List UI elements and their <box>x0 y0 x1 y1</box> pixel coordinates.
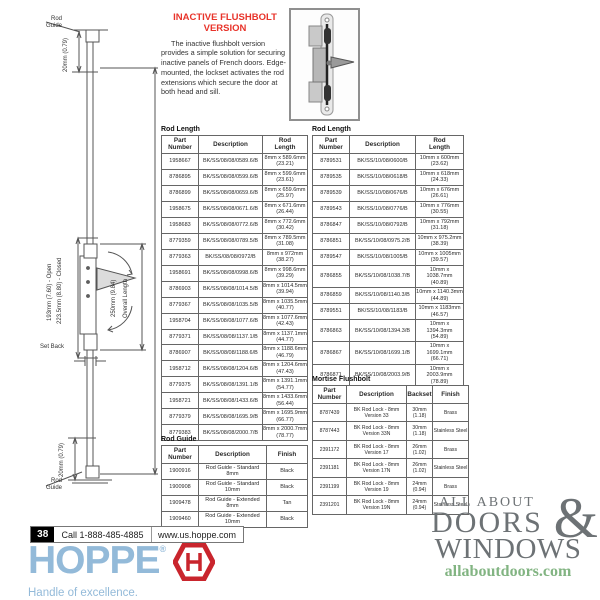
table-cell: 8786867 <box>313 342 350 364</box>
set-back-label: Set Back <box>40 344 64 351</box>
table-row: 8786855BK/SS/10/08/1038.7/B10mm x 1038.7… <box>313 265 464 287</box>
table-cell: 26mm (1.02) <box>407 459 433 478</box>
table-row: 8787443BK Rod Lock - 8mm Version 33N30mm… <box>313 422 469 441</box>
table-cell: BK/SS/08/08/1204.6/B <box>199 361 263 377</box>
column-header: Description <box>350 136 416 154</box>
table-cell: BK Rod Lock - 8mm Version 33N <box>347 422 407 441</box>
table-row: 8786851BK/SS/10/08/0975.2/B10mm x 975.2m… <box>313 233 464 249</box>
rod-guide-top-label: Rod Guide <box>36 16 62 30</box>
table-cell: 10mm x 600mm (23.62) <box>416 153 464 169</box>
table-cell: 8779363 <box>162 249 199 265</box>
table-cell: 10mm x 1183mm (46.57) <box>416 304 464 320</box>
table-cell: 8mm x 1077.6mm (42.43) <box>263 313 308 329</box>
table-cell: BK/SS/08/08/1391.1/B <box>199 377 263 393</box>
table-cell: BK/SS/10/08/1038.7/B <box>350 265 416 287</box>
rod-length-10mm-section: Rod Length Part NumberDescriptionRod Len… <box>312 126 464 387</box>
header-row: Part NumberDescriptionRod Length <box>162 136 308 154</box>
table-cell: BK/SS/08/08/0972/B <box>199 249 263 265</box>
table-row: 1909478Rod Guide - Extended 8mmTan <box>162 495 308 511</box>
table-cell: BK/SS/08/08/0671.6/B <box>199 201 263 217</box>
flushbolt-photo-icon <box>291 10 358 119</box>
column-header: Rod Length <box>416 136 464 154</box>
table-cell: BK/SS/08/08/0998.6/B <box>199 265 263 281</box>
column-header: Backset <box>407 386 433 404</box>
watermark-url[interactable]: allaboutdoors.com <box>418 564 598 581</box>
table-cell: 10mm x 676mm (26.61) <box>416 185 464 201</box>
table-cell: 10mm x 1038.7mm (40.89) <box>416 265 464 287</box>
table-cell: 8779367 <box>162 297 199 313</box>
table-cell: Stainless Steel <box>433 459 469 478</box>
table-row: 8786847BK/SS/10/08/0792/B10mm x 792mm (3… <box>313 217 464 233</box>
hoppe-logo: HOPPE ® Handle of excellence. <box>28 542 215 599</box>
column-header: Finish <box>267 446 308 464</box>
table-cell: 8mm x 1695.9mm (66.77) <box>263 409 308 425</box>
table-cell: 8mm x 972mm (38.27) <box>263 249 308 265</box>
table-cell: BK Rod Lock - 8mm Version 19N <box>347 496 407 515</box>
table-row: 1958691BK/SS/08/08/0998.6/B8mm x 998.6mm… <box>162 265 308 281</box>
hoppe-hexagon-h-icon <box>173 543 215 586</box>
table-title: Rod Length <box>312 126 464 133</box>
intro-paragraph: The inactive flushbolt version provides … <box>161 39 289 97</box>
table-row: 1909460Rod Guide - Extended 10mmBlack <box>162 511 308 527</box>
table-cell: 8786863 <box>313 320 350 342</box>
table-cell: BK/SS/10/08/1699.1/B <box>350 342 416 364</box>
table-cell: 8mm x 659.6mm (25.97) <box>263 185 308 201</box>
table-cell: 2391172 <box>313 440 347 459</box>
table-row: 1900908Rod Guide - Standard 10mmBlack <box>162 479 308 495</box>
column-header: Description <box>347 386 407 404</box>
table-title: Rod Length <box>161 126 308 133</box>
table-row: 1958721BK/SS/08/08/1433.6/B8mm x 1433.6m… <box>162 393 308 409</box>
table-cell: 8789543 <box>313 201 350 217</box>
table-cell: 1958675 <box>162 201 199 217</box>
table-cell: Black <box>267 511 308 527</box>
table-cell: BK/SS/08/08/0772.6/B <box>199 217 263 233</box>
flushbolt-product-photo <box>289 8 360 121</box>
dim-250mm-label: 250mm (9.84) <box>111 248 118 348</box>
table-cell: 8786847 <box>313 217 350 233</box>
table-cell: BK/SS/10/08/0776/B <box>350 201 416 217</box>
table-row: 8786895BK/SS/08/08/0599.6/B8mm x 599.6mm… <box>162 169 308 185</box>
rod-length-10mm-table: Part NumberDescriptionRod Length8789531B… <box>312 135 464 387</box>
table-cell: 8786895 <box>162 169 199 185</box>
rod-guide-section: Rod Guide Part NumberDescriptionFinish19… <box>161 436 308 528</box>
table-cell: 1900908 <box>162 479 199 495</box>
table-cell: 8786899 <box>162 185 199 201</box>
table-cell: 8786907 <box>162 345 199 361</box>
dim-20mm-top-label: 20mm (0.79) <box>63 32 70 78</box>
header-row: Part NumberDescriptionRod Length <box>313 136 464 154</box>
table-cell: Rod Guide - Standard 8mm <box>199 463 267 479</box>
table-cell: 1909460 <box>162 511 199 527</box>
table-cell: BK/SS/08/08/1188.6/B <box>199 345 263 361</box>
table-cell: BK Rod Lock - 8mm Version 17N <box>347 459 407 478</box>
table-cell: 8789551 <box>313 304 350 320</box>
table-cell: BK/SS/08/08/1433.6/B <box>199 393 263 409</box>
table-cell: BK/SS/10/08/0676/B <box>350 185 416 201</box>
table-row: 8786903BK/SS/08/08/1014.5/B8mm x 1014.5m… <box>162 281 308 297</box>
table-cell: 30mm (1.18) <box>407 422 433 441</box>
table-cell: BK/SS/08/08/1035.5/B <box>199 297 263 313</box>
rod-length-8mm-table: Part NumberDescriptionRod Length1958667B… <box>161 135 308 441</box>
table-row: 8789551BK/SS/10/08/1183/B10mm x 1183mm (… <box>313 304 464 320</box>
table-row: 1958675BK/SS/08/08/0671.6/B8mm x 671.6mm… <box>162 201 308 217</box>
table-cell: 8mm x 998.6mm (39.29) <box>263 265 308 281</box>
table-row: 8779367BK/SS/08/08/1035.5/B8mm x 1035.5m… <box>162 297 308 313</box>
table-cell: 1958691 <box>162 265 199 281</box>
table-row: 8779363BK/SS/08/08/0972/B8mm x 972mm (38… <box>162 249 308 265</box>
table-cell: 8789535 <box>313 169 350 185</box>
table-cell: Brass <box>433 477 469 496</box>
table-row: 8786899BK/SS/08/08/0659.6/B8mm x 659.6mm… <box>162 185 308 201</box>
table-cell: 8mm x 1035.5mm (40.77) <box>263 297 308 313</box>
table-row: 8786867BK/SS/10/08/1699.1/B10mm x 1699.1… <box>313 342 464 364</box>
table-cell: 10mm x 618mm (24.33) <box>416 169 464 185</box>
table-cell: 8mm x 599.6mm (23.61) <box>263 169 308 185</box>
table-cell: BK/SS/10/08/0975.2/B <box>350 233 416 249</box>
table-cell: 8779379 <box>162 409 199 425</box>
table-cell: BK/SS/08/08/1137.1/B <box>199 329 263 345</box>
table-cell: 10mm x 792mm (31.18) <box>416 217 464 233</box>
rod-length-8mm-section: Rod Length Part NumberDescriptionRod Len… <box>161 126 308 441</box>
table-cell: BK/SS/10/08/1140.3/B <box>350 288 416 304</box>
table-title: Rod Guide <box>161 436 308 443</box>
table-cell: 10mm x 975.2mm (38.39) <box>416 233 464 249</box>
table-row: 1900916Rod Guide - Standard 8mmBlack <box>162 463 308 479</box>
allaboutdoors-logo: & ALL ABOUT DOORS WINDOWS allaboutdoors.… <box>418 496 598 581</box>
table-cell: BK Rod Lock - 8mm Version 19 <box>347 477 407 496</box>
ampersand-glyph: & <box>554 490 598 547</box>
table-cell: 8786855 <box>313 265 350 287</box>
table-cell: 8mm x 1391.1mm (54.77) <box>263 377 308 393</box>
table-cell: 10mm x 1394.3mm (54.89) <box>416 320 464 342</box>
column-header: Part Number <box>313 136 350 154</box>
table-row: 8789535BK/SS/10/08/0618/B10mm x 618mm (2… <box>313 169 464 185</box>
table-cell: Rod Guide - Extended 8mm <box>199 495 267 511</box>
table-row: 8779375BK/SS/08/08/1391.1/B8mm x 1391.1m… <box>162 377 308 393</box>
table-cell: 2391181 <box>313 459 347 478</box>
column-header: Part Number <box>313 386 347 404</box>
table-cell: BK Rod Lock - 8mm Version 17 <box>347 440 407 459</box>
dim-closed-label: 223.5mm (8.80) - Closed <box>57 230 64 352</box>
table-cell: 8mm x 589.6mm (23.21) <box>263 153 308 169</box>
table-cell: Rod Guide - Standard 10mm <box>199 479 267 495</box>
table-cell: 2391199 <box>313 477 347 496</box>
column-header: Rod Length <box>263 136 308 154</box>
table-cell: 8787439 <box>313 403 347 422</box>
page-title: INACTIVE FLUSHBOLT VERSION <box>161 12 289 35</box>
table-cell: 2391201 <box>313 496 347 515</box>
table-row: 1958712BK/SS/08/08/1204.6/B8mm x 1204.6m… <box>162 361 308 377</box>
column-header: Description <box>199 446 267 464</box>
header-row: Part NumberDescriptionFinish <box>162 446 308 464</box>
table-row: 8786907BK/SS/08/08/1188.6/B8mm x 1188.6m… <box>162 345 308 361</box>
diagram-linework-icon <box>8 8 160 520</box>
column-header: Part Number <box>162 446 199 464</box>
hoppe-wordmark: HOPPE <box>28 542 160 579</box>
table-cell: BK/SS/10/08/0792/B <box>350 217 416 233</box>
table-cell: 10mm x 1699.1mm (66.71) <box>416 342 464 364</box>
table-row: 8786863BK/SS/10/08/1394.3/B10mm x 1394.3… <box>313 320 464 342</box>
intro-section: INACTIVE FLUSHBOLT VERSION The inactive … <box>161 12 289 97</box>
table-row: 8787439BK Rod Lock - 8mm Version 3330mm … <box>313 403 469 422</box>
rod-guide-bottom-label: Rod Guide <box>36 478 62 492</box>
table-row: 8779379BK/SS/08/08/1695.9/B8mm x 1695.9m… <box>162 409 308 425</box>
table-cell: 8786859 <box>313 288 350 304</box>
table-cell: 10mm x 776mm (30.55) <box>416 201 464 217</box>
table-row: 8779359BK/SS/08/08/0789.5/B8mm x 789.5mm… <box>162 233 308 249</box>
table-cell: Tan <box>267 495 308 511</box>
table-row: 8789543BK/SS/10/08/0776/B10mm x 776mm (3… <box>313 201 464 217</box>
table-cell: BK/SS/10/08/0600/B <box>350 153 416 169</box>
table-cell: 10mm x 1005mm (39.57) <box>416 249 464 265</box>
table-cell: 8789539 <box>313 185 350 201</box>
header-row: Part NumberDescriptionBacksetFinish <box>313 386 469 404</box>
table-cell: 1958721 <box>162 393 199 409</box>
table-row: 8779371BK/SS/08/08/1137.1/B8mm x 1137.1m… <box>162 329 308 345</box>
table-cell: 8mm x 1137.1mm (44.77) <box>263 329 308 345</box>
table-cell: 8mm x 1014.5mm (39.94) <box>263 281 308 297</box>
table-row: 8786859BK/SS/10/08/1140.3/B10mm x 1140.3… <box>313 288 464 304</box>
table-cell: 8779371 <box>162 329 199 345</box>
table-cell: 24mm (0.94) <box>407 477 433 496</box>
table-cell: BK/SS/08/08/1077.6/B <box>199 313 263 329</box>
table-cell: Brass <box>433 440 469 459</box>
table-cell: 8mm x 1188.6mm (46.79) <box>263 345 308 361</box>
table-cell: 8786903 <box>162 281 199 297</box>
table-row: 1958667BK/SS/08/08/0589.6/B8mm x 589.6mm… <box>162 153 308 169</box>
table-cell: 8mm x 772.6mm (30.42) <box>263 217 308 233</box>
table-cell: 8mm x 1204.6mm (47.43) <box>263 361 308 377</box>
catalog-page: Rod Guide 20mm (0.79) 193mm (7.60) - Ope… <box>0 0 600 600</box>
table-cell: 1958667 <box>162 153 199 169</box>
table-row: 8789531BK/SS/10/08/0600/B10mm x 600mm (2… <box>313 153 464 169</box>
website-link[interactable]: www.us.hoppe.com <box>151 527 243 542</box>
table-title: Mortise Flushbolt <box>312 376 469 383</box>
table-cell: BK/SS/10/08/1394.3/B <box>350 320 416 342</box>
table-cell: 1958712 <box>162 361 199 377</box>
table-cell: BK/SS/08/08/1695.9/B <box>199 409 263 425</box>
table-cell: 8779375 <box>162 377 199 393</box>
table-cell: 8779359 <box>162 233 199 249</box>
table-cell: 8mm x 789.5mm (31.08) <box>263 233 308 249</box>
table-cell: Stainless Steel <box>433 422 469 441</box>
registered-trademark-symbol: ® <box>160 544 167 554</box>
table-cell: 8mm x 671.6mm (26.44) <box>263 201 308 217</box>
table-cell: BK/SS/08/08/0599.6/B <box>199 169 263 185</box>
table-cell: 10mm x 1140.3mm (44.89) <box>416 288 464 304</box>
column-header: Part Number <box>162 136 199 154</box>
table-cell: 8mm x 1433.6mm (56.44) <box>263 393 308 409</box>
table-cell: BK/SS/10/08/1183/B <box>350 304 416 320</box>
dim-open-label: 193mm (7.60) - Open <box>47 236 54 348</box>
table-row: 2391172BK Rod Lock - 8mm Version 1726mm … <box>313 440 469 459</box>
overall-length-label: Overall Length <box>123 246 130 350</box>
table-cell: 30mm (1.18) <box>407 403 433 422</box>
table-cell: 8786851 <box>313 233 350 249</box>
table-cell: 26mm (1.02) <box>407 440 433 459</box>
table-cell: Black <box>267 463 308 479</box>
column-header: Description <box>199 136 263 154</box>
column-header: Finish <box>433 386 469 404</box>
table-row: 8789547BK/SS/10/08/1005/B10mm x 1005mm (… <box>313 249 464 265</box>
table-row: 1958704BK/SS/08/08/1077.6/B8mm x 1077.6m… <box>162 313 308 329</box>
table-cell: BK/SS/08/08/0589.6/B <box>199 153 263 169</box>
table-cell: Black <box>267 479 308 495</box>
rod-guide-table: Part NumberDescriptionFinish1900916Rod G… <box>161 445 308 528</box>
hoppe-tagline: Handle of excellence. <box>28 587 215 599</box>
table-cell: 8787443 <box>313 422 347 441</box>
table-cell: 1900916 <box>162 463 199 479</box>
table-cell: BK/SS/10/08/0618/B <box>350 169 416 185</box>
table-cell: BK/SS/08/08/0659.6/B <box>199 185 263 201</box>
table-cell: 1909478 <box>162 495 199 511</box>
table-cell: Brass <box>433 403 469 422</box>
table-cell: BK Rod Lock - 8mm Version 33 <box>347 403 407 422</box>
table-row: 2391181BK Rod Lock - 8mm Version 17N26mm… <box>313 459 469 478</box>
table-row: 2391199BK Rod Lock - 8mm Version 1924mm … <box>313 477 469 496</box>
table-row: 8789539BK/SS/10/08/0676/B10mm x 676mm (2… <box>313 185 464 201</box>
table-cell: BK/SS/08/08/1014.5/B <box>199 281 263 297</box>
table-cell: BK/SS/10/08/1005/B <box>350 249 416 265</box>
table-cell: 8789531 <box>313 153 350 169</box>
table-cell: 1958683 <box>162 217 199 233</box>
table-row: 1958683BK/SS/08/08/0772.6/B8mm x 772.6mm… <box>162 217 308 233</box>
flushbolt-dimension-diagram: Rod Guide 20mm (0.79) 193mm (7.60) - Ope… <box>8 8 160 520</box>
table-cell: Rod Guide - Extended 10mm <box>199 511 267 527</box>
dim-20mm-bottom-label: 20mm (0.79) <box>59 436 66 484</box>
table-cell: BK/SS/08/08/0789.5/B <box>199 233 263 249</box>
table-cell: 1958704 <box>162 313 199 329</box>
table-cell: 8789547 <box>313 249 350 265</box>
